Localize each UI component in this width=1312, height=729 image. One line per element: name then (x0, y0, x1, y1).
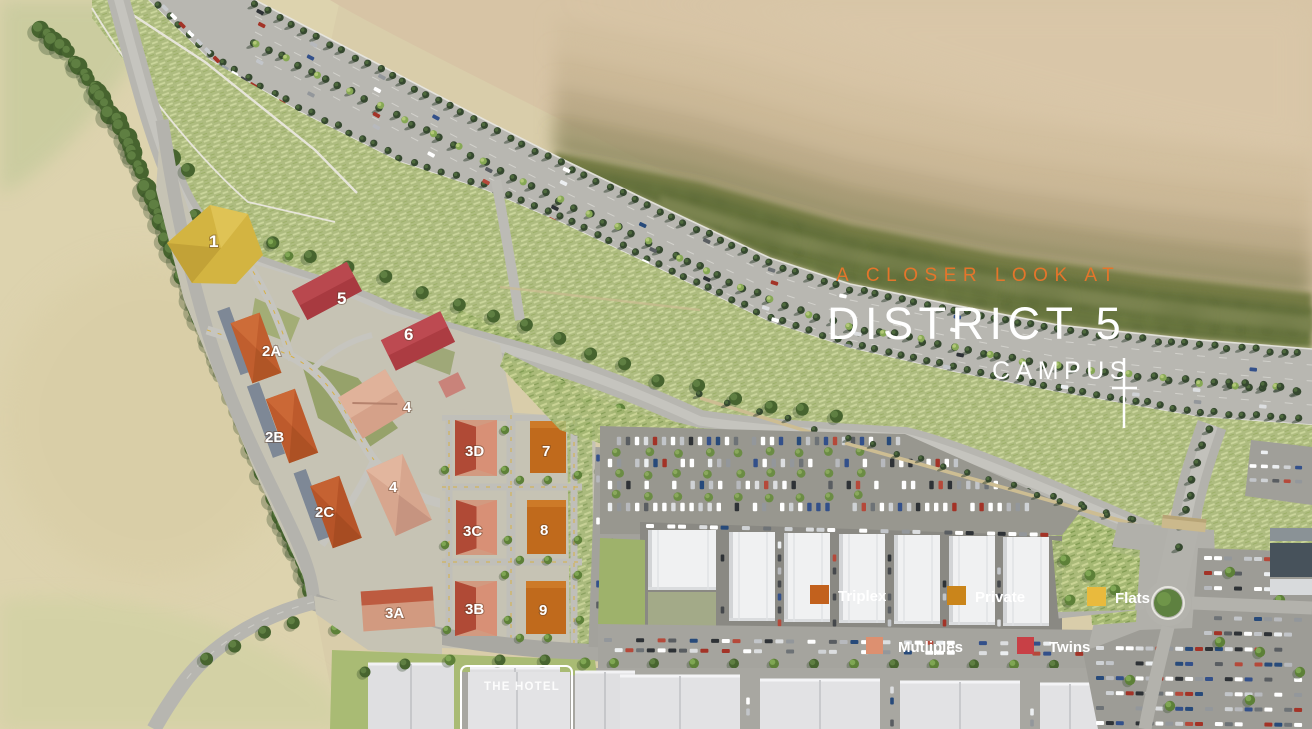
svg-text:2C: 2C (315, 504, 334, 521)
svg-text:Flats: Flats (1115, 590, 1150, 607)
svg-text:Private: Private (975, 589, 1025, 606)
svg-text:DISTRICT 5: DISTRICT 5 (827, 298, 1126, 349)
svg-text:THE HOTEL: THE HOTEL (484, 681, 560, 693)
svg-text:5: 5 (337, 289, 346, 308)
svg-text:1: 1 (209, 232, 218, 251)
svg-text:2B: 2B (265, 429, 284, 446)
svg-text:3A: 3A (385, 605, 404, 622)
svg-text:3B: 3B (465, 601, 484, 618)
svg-text:Mutliples: Mutliples (898, 639, 963, 656)
svg-text:Triplex: Triplex (838, 588, 887, 605)
svg-text:6: 6 (404, 325, 413, 344)
svg-text:4: 4 (389, 479, 398, 496)
svg-text:3C: 3C (463, 523, 482, 540)
svg-text:CAMPUS: CAMPUS (992, 357, 1132, 385)
svg-text:Twins: Twins (1049, 639, 1090, 656)
svg-text:8: 8 (540, 522, 548, 539)
svg-text:2A: 2A (262, 343, 281, 360)
svg-text:9: 9 (539, 602, 547, 619)
svg-text:4: 4 (403, 399, 412, 416)
svg-text:3D: 3D (465, 443, 484, 460)
svg-text:A CLOSER LOOK AT: A CLOSER LOOK AT (836, 265, 1120, 286)
svg-text:7: 7 (542, 443, 550, 460)
